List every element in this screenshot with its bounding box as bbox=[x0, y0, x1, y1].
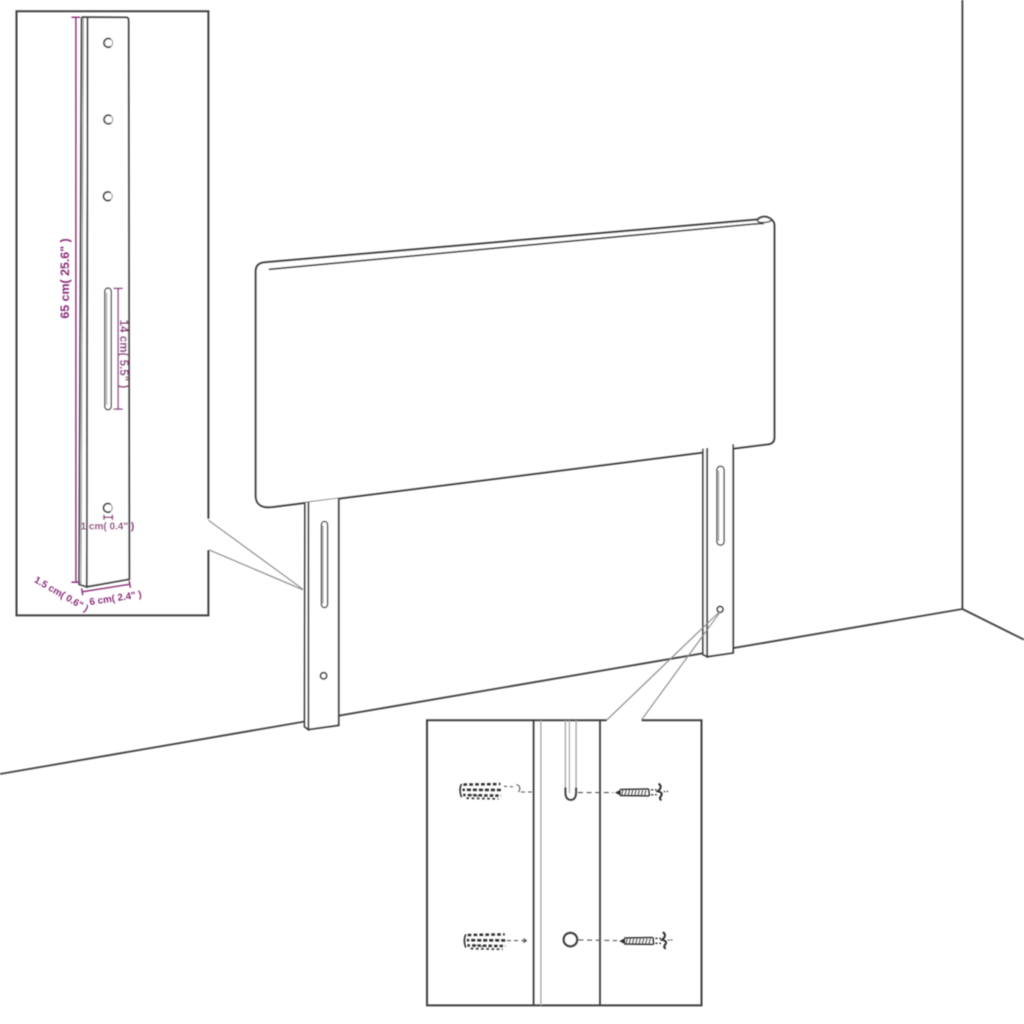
svg-text:1 cm( 0.4" ): 1 cm( 0.4" ) bbox=[81, 522, 135, 533]
svg-text:14 cm( 5.5" ): 14 cm( 5.5" ) bbox=[117, 320, 130, 389]
svg-text:65 cm( 25.6" ): 65 cm( 25.6" ) bbox=[58, 238, 72, 318]
